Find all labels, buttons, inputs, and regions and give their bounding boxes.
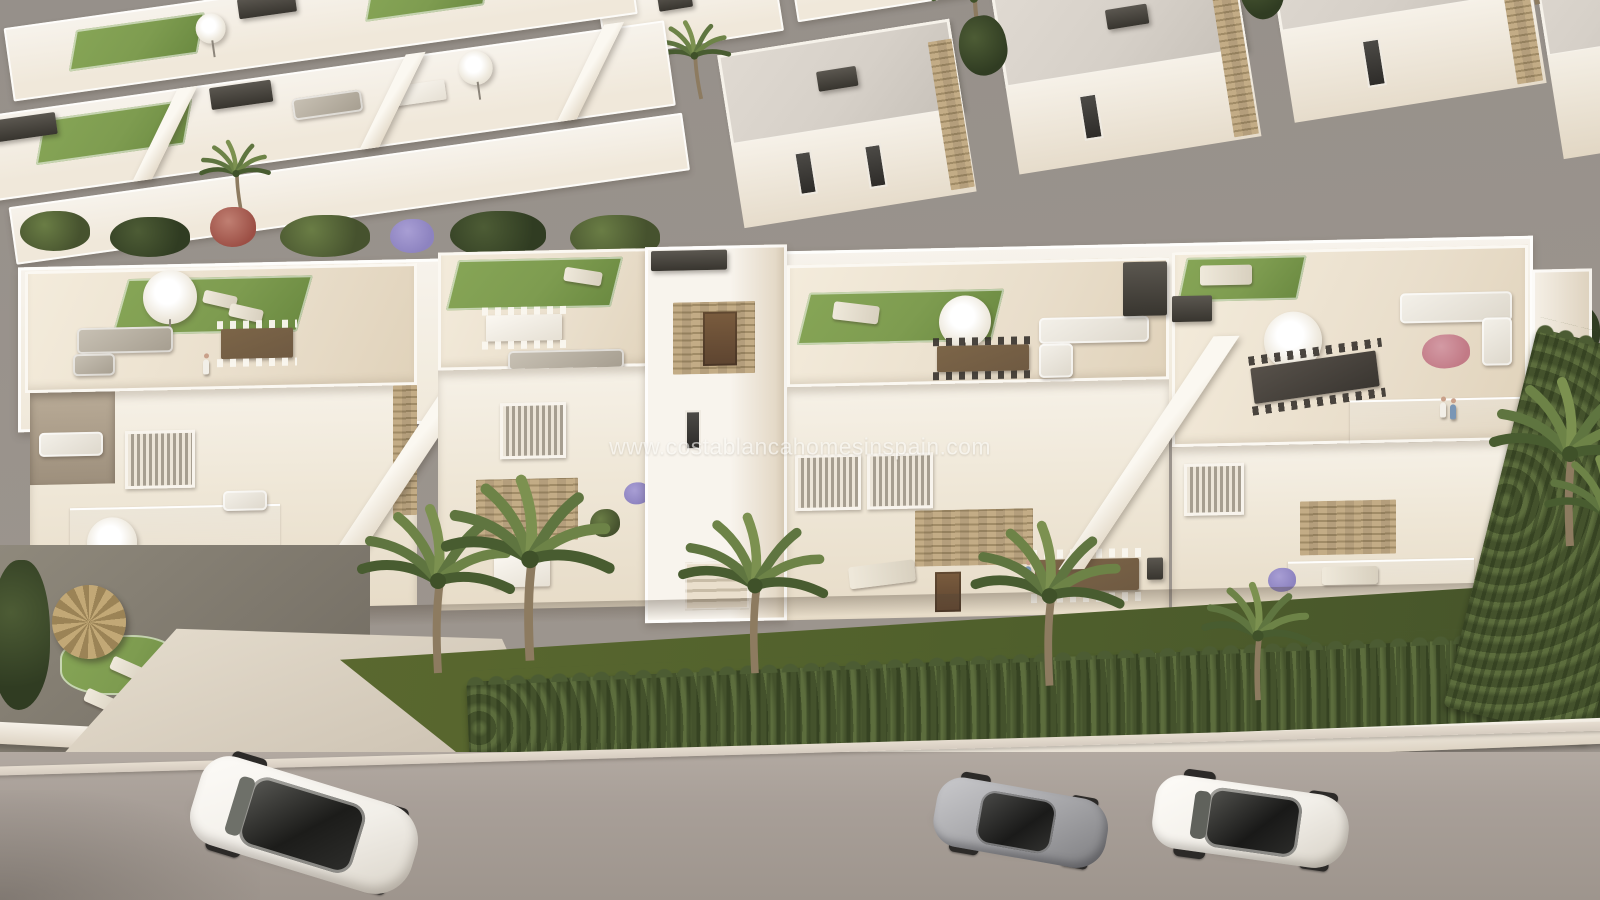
louvre-window xyxy=(125,430,195,489)
balcony-seat xyxy=(223,490,267,511)
palm-tree xyxy=(952,472,1147,712)
entry-door xyxy=(703,311,737,366)
dining-table xyxy=(221,328,293,360)
shrub xyxy=(0,560,50,710)
louvre-window xyxy=(1184,463,1244,516)
render-scene: www.costablancahomesinspain.com xyxy=(0,0,1600,900)
corner-sofa xyxy=(1039,316,1149,344)
waste-bins xyxy=(1147,557,1163,579)
outdoor-sofa xyxy=(77,326,173,354)
pergola xyxy=(1172,295,1212,322)
car-glass-roof xyxy=(1202,786,1303,858)
roof-daybed xyxy=(1200,265,1252,286)
porch-sofa xyxy=(39,432,103,457)
person-figure xyxy=(203,359,209,374)
dining-table xyxy=(486,314,562,342)
person-figure xyxy=(1440,402,1446,417)
palm-tree xyxy=(420,420,640,690)
bougainvillea xyxy=(1422,334,1470,369)
person-figure xyxy=(1450,404,1456,419)
palm-tree xyxy=(1530,420,1600,600)
palm-tree xyxy=(660,462,850,702)
palm-tree xyxy=(1188,548,1328,718)
dining-chairs xyxy=(217,320,297,330)
pergola xyxy=(1123,261,1167,316)
watermark-text: www.costablancahomesinspain.com xyxy=(609,434,991,461)
sun-lounger xyxy=(1322,566,1378,585)
thatched-palapa xyxy=(52,585,126,659)
pergola xyxy=(651,250,727,272)
dining-chairs xyxy=(217,358,297,368)
corner-sofa xyxy=(1039,343,1073,378)
louvre-window xyxy=(867,452,933,509)
dining-table xyxy=(937,344,1029,372)
outdoor-sofa xyxy=(73,353,115,376)
